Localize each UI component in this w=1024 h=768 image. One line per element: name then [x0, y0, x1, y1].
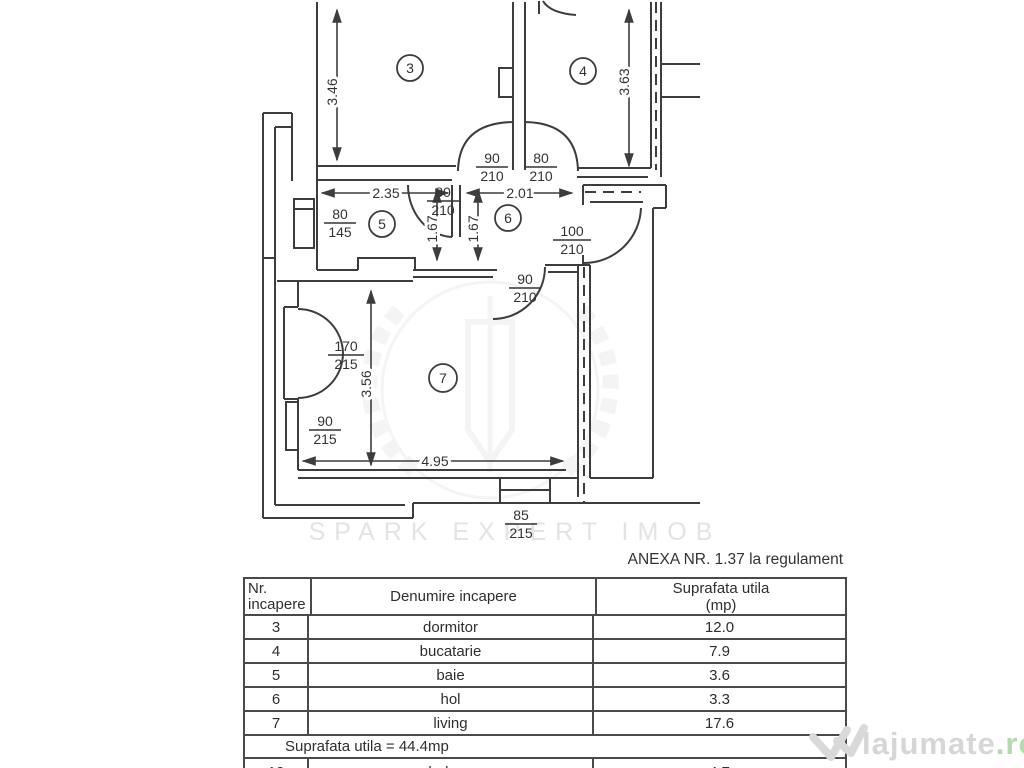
walls-solid	[263, 1, 700, 518]
door-size-label: 85 215	[505, 507, 537, 541]
header-nr-incapere: Nr. incapere	[245, 579, 312, 614]
annex-caption: ANEXA NR. 1.37 la regulament	[560, 551, 843, 569]
table-row-partial: 12 balcon 4.7	[245, 757, 845, 768]
svg-text:90: 90	[317, 413, 333, 429]
site-watermark-name: lajumate	[862, 726, 996, 761]
svg-text:5: 5	[378, 216, 386, 232]
svg-text:210: 210	[529, 168, 553, 184]
door-size-label: 90 215	[309, 413, 341, 447]
room-numbers: 3 4 5 6 7	[369, 55, 596, 392]
room-areas-table: Nr. incapere Denumire incapere Suprafata…	[243, 577, 847, 768]
svg-text:90: 90	[484, 150, 500, 166]
table-total-row: Suprafata utila = 44.4mp	[245, 734, 845, 757]
room-number: 5	[369, 211, 395, 237]
svg-text:210: 210	[480, 168, 504, 184]
room-number: 7	[429, 364, 457, 392]
dimension-label: 3.46	[324, 78, 340, 105]
table-row: 5 baie 3.6	[245, 662, 845, 686]
agency-emblem-watermark	[369, 282, 611, 498]
site-watermark-tld: .ro	[996, 726, 1024, 761]
dimension-label: 1.67	[424, 215, 440, 242]
dimension-label: 2.35	[372, 185, 399, 201]
svg-text:6: 6	[504, 210, 512, 226]
svg-text:210: 210	[560, 241, 584, 257]
scanned-floor-plan-page: ANEXA NR. 1.37 la regulament Nr. incaper…	[0, 0, 1024, 768]
svg-text:145: 145	[328, 224, 352, 240]
door-size-label: 80 145	[324, 206, 356, 240]
svg-text:90: 90	[517, 271, 533, 287]
door-size-label: 90 210	[509, 271, 541, 305]
room-number: 6	[495, 205, 521, 231]
room-number: 4	[570, 58, 596, 84]
table-row: 3 dormitor 12.0	[245, 614, 845, 638]
dimension-label: 1.67	[465, 215, 481, 242]
dimension-label: 3.63	[616, 68, 632, 95]
room-number: 3	[397, 55, 423, 81]
table-row: 7 living 17.6	[245, 710, 845, 734]
svg-text:85: 85	[513, 507, 529, 523]
dimension-label: 4.95	[421, 453, 448, 469]
dimension-label: 2.01	[506, 185, 533, 201]
door-size-labels: 90 210 80 210 80 145 80 210 100	[309, 150, 591, 541]
table-header-row: Nr. incapere Denumire incapere Suprafata…	[245, 579, 845, 614]
walls-dashed-windows	[584, 2, 656, 503]
dimension-label: 3.56	[358, 370, 374, 397]
svg-text:215: 215	[313, 431, 337, 447]
door-size-label: 80 210	[427, 184, 459, 218]
door-size-label: 170 215	[328, 338, 364, 372]
svg-text:80: 80	[533, 150, 549, 166]
svg-text:210: 210	[513, 289, 537, 305]
svg-text:170: 170	[334, 338, 358, 354]
dimension-labels: 3.46 3.63 2.35 2.01 1.67 1.67 3.56 4.95	[324, 68, 632, 469]
svg-text:215: 215	[334, 356, 358, 372]
svg-text:3: 3	[406, 60, 414, 76]
header-suprafata: Suprafata utila (mp)	[597, 579, 845, 614]
svg-text:210: 210	[431, 202, 455, 218]
svg-text:215: 215	[509, 525, 533, 541]
door-size-label: 80 210	[525, 150, 557, 184]
header-denumire: Denumire incapere	[312, 579, 597, 614]
svg-text:80: 80	[332, 206, 348, 222]
door-size-label: 100 210	[553, 223, 591, 257]
dimension-lines	[303, 10, 629, 465]
door-size-label: 90 210	[476, 150, 508, 184]
svg-text:7: 7	[439, 370, 447, 386]
svg-text:lajumate.ro: lajumate.ro	[862, 726, 1024, 761]
svg-text:100: 100	[560, 223, 584, 239]
table-row: 4 bucatarie 7.9	[245, 638, 845, 662]
agency-name-watermark: SPARK EXPERT IMOB	[309, 518, 722, 546]
svg-text:4: 4	[579, 63, 587, 79]
table-row: 6 hol 3.3	[245, 686, 845, 710]
svg-text:80: 80	[435, 184, 451, 200]
